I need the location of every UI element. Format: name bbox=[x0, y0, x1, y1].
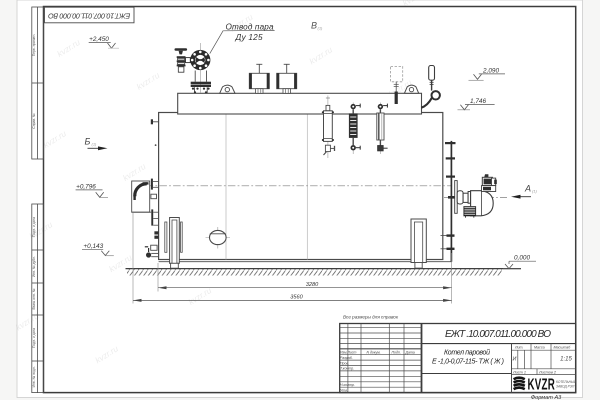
svg-text:Масса: Масса bbox=[534, 345, 545, 349]
svg-text:Подп.: Подп. bbox=[392, 350, 401, 354]
svg-text:3560: 3560 bbox=[290, 295, 303, 301]
svg-text:Подп. и дата: Подп. и дата bbox=[32, 328, 36, 348]
svg-text:Формат А3: Формат А3 bbox=[531, 395, 562, 400]
svg-text:ЗАВОД РЭП: ЗАВОД РЭП bbox=[556, 384, 575, 388]
svg-text:3280: 3280 bbox=[306, 282, 319, 288]
svg-text:2,090: 2,090 bbox=[482, 67, 499, 74]
svg-text:Б: Б bbox=[85, 136, 91, 146]
svg-text:Е -1,0-0,07-115- ТЖ ( Ж ): Е -1,0-0,07-115- ТЖ ( Ж ) bbox=[432, 359, 504, 366]
svg-text:1,746: 1,746 bbox=[470, 98, 486, 105]
svg-text:+2,450: +2,450 bbox=[89, 36, 109, 43]
svg-text:КОТЕЛЬНЫЙ: КОТЕЛЬНЫЙ bbox=[556, 380, 577, 384]
svg-text:Инв. № подл.: Инв. № подл. bbox=[32, 366, 36, 387]
svg-text:Лист 1: Лист 1 bbox=[512, 370, 526, 374]
svg-text:(1): (1) bbox=[92, 141, 98, 146]
svg-text:1:15: 1:15 bbox=[560, 357, 572, 363]
svg-text:Листов 2: Листов 2 bbox=[538, 370, 557, 374]
svg-text:Ду 125: Ду 125 bbox=[235, 33, 263, 42]
svg-text:Утв.: Утв. bbox=[340, 388, 348, 392]
svg-text:А: А bbox=[524, 183, 531, 193]
svg-text:Изм.Лист: Изм.Лист bbox=[340, 350, 357, 354]
svg-text:И: И bbox=[513, 357, 517, 363]
svg-text:Взам. инв. №: Взам. инв. № bbox=[32, 288, 36, 309]
svg-text:(1): (1) bbox=[318, 26, 324, 31]
svg-text:ЕЖТ .10.007.011.00.000 ВО: ЕЖТ .10.007.011.00.000 ВО bbox=[445, 329, 551, 340]
svg-text:Лит.: Лит. bbox=[514, 345, 523, 349]
svg-text:Перв. примен.: Перв. примен. bbox=[32, 34, 36, 57]
svg-text:Все размеры для справок: Все размеры для справок bbox=[343, 315, 399, 320]
svg-text:Н.контр.: Н.контр. bbox=[340, 383, 355, 387]
svg-text:Пров.: Пров. bbox=[340, 361, 349, 365]
svg-text:Инв. № дубл.: Инв. № дубл. bbox=[32, 256, 36, 277]
svg-text:+0,143: +0,143 bbox=[83, 243, 103, 250]
svg-text:Дата: Дата bbox=[405, 350, 415, 354]
svg-text:Котел паровой: Котел паровой bbox=[444, 348, 490, 356]
svg-text:Масштаб: Масштаб bbox=[554, 345, 572, 349]
svg-text:Т.контр.: Т.контр. bbox=[340, 367, 354, 371]
svg-text:0,000: 0,000 bbox=[514, 255, 530, 262]
svg-text:Подп. и дата: Подп. и дата bbox=[32, 217, 36, 237]
svg-text:ЕЖТ.10.007.011.00.000 ВО: ЕЖТ.10.007.011.00.000 ВО bbox=[48, 11, 130, 20]
svg-text:(1): (1) bbox=[532, 188, 538, 193]
svg-text:Справ. №: Справ. № bbox=[32, 113, 36, 129]
svg-text:Разраб.: Разраб. bbox=[340, 356, 353, 360]
svg-text:N докум.: N докум. bbox=[367, 350, 381, 354]
svg-text:В: В bbox=[311, 21, 317, 31]
svg-text:KVZR: KVZR bbox=[528, 375, 556, 393]
